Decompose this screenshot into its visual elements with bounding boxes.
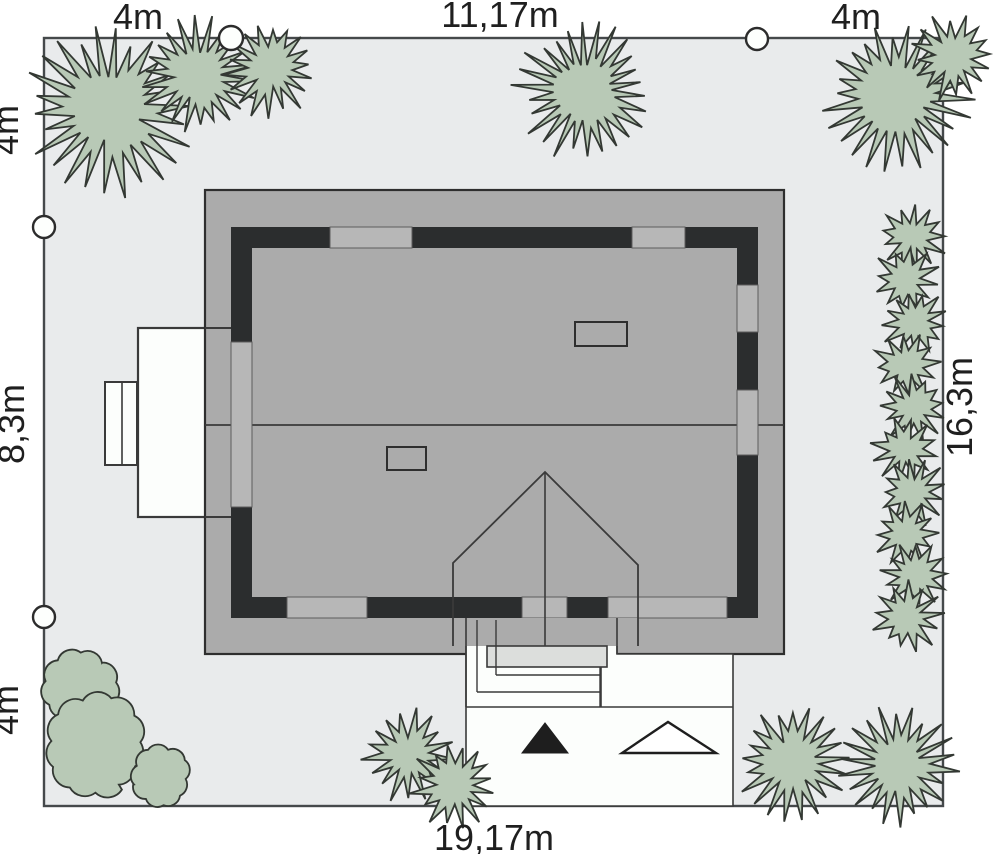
dimension-label: 4m (113, 0, 163, 37)
chimney (575, 322, 627, 346)
dimension-label: 19,17m (434, 817, 554, 854)
dimension-label: 16,3m (939, 357, 980, 457)
dimension-label: 4m (831, 0, 881, 37)
chimney (387, 447, 426, 470)
window-left (231, 342, 252, 507)
window-bottom (287, 597, 367, 618)
dimension-label: 11,17m (441, 0, 558, 35)
dimension-label: 4m (0, 105, 26, 155)
boundary-marker (219, 26, 243, 50)
site-plan: 4m11,17m4m4m8,3m4m16,3m19,17m (0, 0, 995, 854)
site-plan-svg: 4m11,17m4m4m8,3m4m16,3m19,17m (0, 0, 995, 854)
window-right (737, 390, 758, 455)
annex-side (105, 382, 137, 465)
dimension-label: 4m (0, 685, 26, 735)
roof-outline (205, 190, 784, 654)
boundary-marker (33, 606, 55, 628)
window-right (737, 285, 758, 332)
window-top (330, 227, 412, 248)
boundary-marker (33, 216, 55, 238)
window-bottom (608, 597, 727, 618)
boundary-marker (746, 28, 768, 50)
dimension-label: 8,3m (0, 384, 32, 464)
entry-landing (487, 646, 607, 667)
window-top (632, 227, 685, 248)
